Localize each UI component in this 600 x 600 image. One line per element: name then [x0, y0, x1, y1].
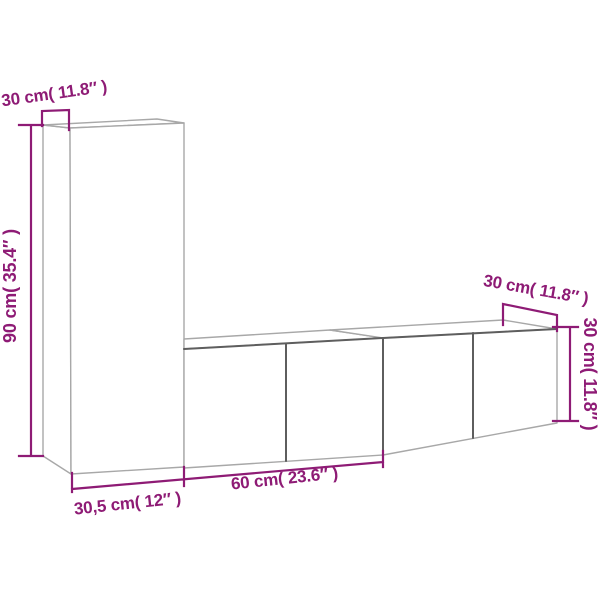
- tall-cabinet-side-panel: [43, 125, 71, 474]
- tall-cabinet-door: [70, 123, 184, 474]
- dim-line-tall-height: [19, 125, 43, 456]
- dim-label-tall-width: 30,5 cm( 12″ ): [73, 488, 182, 518]
- low-cabinet-right-doors: [383, 329, 557, 455]
- low-wall-cabinets: [184, 320, 557, 468]
- diagram-canvas: 30 cm( 11.8″ ) 90 cm( 35.4″ ) 30,5 cm( 1…: [0, 0, 600, 600]
- product-dimension-diagram: 30 cm( 11.8″ ) 90 cm( 35.4″ ) 30,5 cm( 1…: [0, 0, 600, 600]
- dim-label-tall-height: 90 cm( 35.4″ ): [0, 229, 20, 343]
- dim-label-tall-depth: 30 cm( 11.8″ ): [0, 77, 108, 111]
- dim-label-low-depth: 30 cm( 11.8″ ): [482, 271, 590, 308]
- low-cabinet-left-doors: [184, 338, 383, 468]
- dim-label-low-height: 30 cm( 11.8″ ): [580, 318, 600, 431]
- dim-label-low-width: 60 cm( 23.6″ ): [230, 463, 339, 493]
- tall-cabinet: [43, 119, 184, 474]
